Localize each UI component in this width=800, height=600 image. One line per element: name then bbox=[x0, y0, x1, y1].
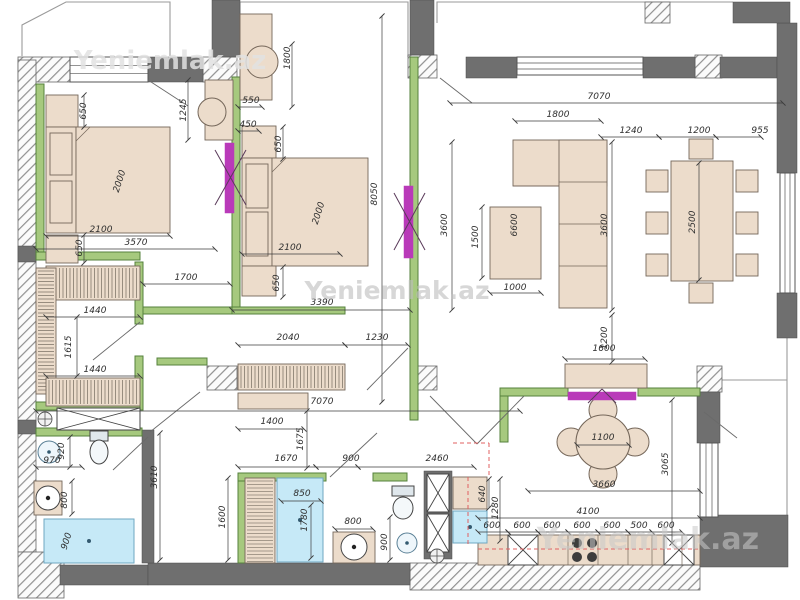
dimension-label: 955 bbox=[751, 126, 768, 136]
furniture bbox=[736, 170, 758, 192]
wall-segment bbox=[410, 0, 434, 55]
dimension-label: 1800 bbox=[547, 110, 570, 120]
dimension-label: 900 bbox=[342, 454, 359, 464]
dimension-label: 3600 bbox=[440, 213, 450, 236]
dimension-label: 3660 bbox=[593, 480, 616, 490]
dimension-label: 640 bbox=[478, 485, 488, 502]
dimension-label: 7070 bbox=[588, 92, 611, 102]
dimension-label: 8050 bbox=[370, 182, 380, 205]
watermark-text: Yeniemlak.az bbox=[536, 522, 759, 557]
dimension-label: 800 bbox=[60, 491, 70, 508]
dimension-label: 550 bbox=[242, 96, 259, 106]
furniture bbox=[50, 133, 72, 175]
wall-segment bbox=[697, 392, 720, 443]
furniture bbox=[671, 161, 733, 281]
furniture bbox=[689, 139, 713, 159]
partition-wall bbox=[232, 307, 345, 314]
wall-segment bbox=[60, 565, 148, 585]
fixture-drain bbox=[468, 525, 472, 529]
toilet-bowl bbox=[393, 497, 413, 519]
dimension-label: 1700 bbox=[175, 273, 198, 283]
hatched-wall bbox=[697, 366, 722, 392]
dimension-label: 2100 bbox=[279, 243, 302, 253]
dimension-label: 1500 bbox=[471, 225, 481, 248]
dimension-label: 7070 bbox=[311, 397, 334, 407]
window bbox=[700, 443, 718, 517]
wall-segment bbox=[148, 563, 410, 585]
furniture bbox=[646, 212, 668, 234]
dimension-label: 650 bbox=[79, 102, 89, 119]
dimension-label: 1675 bbox=[296, 427, 306, 450]
sliding-door bbox=[568, 392, 636, 400]
dimension-label: 1280 bbox=[491, 496, 501, 519]
furniture bbox=[565, 364, 647, 388]
partition-wall bbox=[638, 388, 700, 396]
door-swing bbox=[440, 78, 472, 103]
furniture bbox=[238, 393, 308, 409]
shelving-cabinet bbox=[238, 364, 345, 390]
dimension-label: 1670 bbox=[275, 454, 298, 464]
hatched-wall bbox=[410, 563, 700, 590]
dimension-label: 1800 bbox=[283, 46, 293, 69]
dimension-label: 650 bbox=[75, 239, 85, 256]
door-swing bbox=[430, 396, 477, 444]
wall-segment bbox=[18, 246, 36, 262]
hatched-wall bbox=[207, 366, 237, 390]
dimension-label: 1440 bbox=[84, 365, 107, 375]
dimension-label: 600 bbox=[513, 521, 530, 531]
wall-segment bbox=[466, 57, 517, 78]
dimension-label: 3065 bbox=[661, 452, 671, 475]
dimension-label: 1780 bbox=[300, 508, 310, 531]
furniture bbox=[246, 164, 268, 208]
partition-wall bbox=[143, 307, 240, 314]
watermark-text: Yeniemlak.az bbox=[303, 276, 489, 305]
furniture bbox=[246, 212, 268, 256]
dimension-label: 1615 bbox=[64, 335, 74, 358]
hatched-wall bbox=[18, 60, 36, 552]
wall-segment bbox=[777, 23, 797, 173]
hatched-wall bbox=[695, 55, 722, 78]
dimension-label: 6600 bbox=[510, 213, 520, 236]
furniture bbox=[736, 254, 758, 276]
door-swing bbox=[93, 322, 140, 360]
building-outline bbox=[437, 2, 733, 23]
shelving-cabinet bbox=[36, 268, 56, 394]
floor-plan-page: 6502000210065035701245170014401615144055… bbox=[0, 0, 800, 600]
dimension-label: 1600 bbox=[593, 344, 616, 354]
partition-wall bbox=[373, 473, 407, 481]
dimension-label: 4100 bbox=[577, 507, 600, 517]
window bbox=[517, 57, 643, 75]
furniture bbox=[646, 170, 668, 192]
dimension-label: 3610 bbox=[150, 465, 160, 488]
wall-segment bbox=[777, 293, 797, 338]
toilet-tank bbox=[392, 486, 414, 496]
dimension-label: 2100 bbox=[90, 225, 113, 235]
fixture-drain bbox=[87, 539, 91, 543]
hatched-wall bbox=[645, 2, 670, 23]
plan-layers: 6502000210065035701245170014401615144055… bbox=[18, 0, 797, 598]
furniture bbox=[50, 181, 72, 223]
dimension-label: 800 bbox=[344, 517, 361, 527]
dimension-label: 3570 bbox=[125, 238, 148, 248]
dimension-label: 2040 bbox=[277, 333, 300, 343]
wall-segment bbox=[733, 2, 790, 23]
door-swing bbox=[367, 348, 408, 390]
dimension-label: 450 bbox=[239, 120, 256, 130]
dimension-label: 1200 bbox=[688, 126, 711, 136]
furniture bbox=[689, 283, 713, 303]
dimension-label: 650 bbox=[274, 135, 284, 152]
partition-wall bbox=[157, 358, 207, 365]
dimension-label: 2460 bbox=[426, 454, 449, 464]
toilet-bowl bbox=[90, 440, 108, 464]
washer-dot bbox=[46, 496, 50, 500]
sliding-door bbox=[225, 143, 234, 213]
watermark-text: Yeniemlak.az bbox=[73, 46, 267, 76]
dimension-label: 1400 bbox=[261, 417, 284, 427]
wall-segment bbox=[643, 57, 695, 78]
partition-wall bbox=[36, 84, 44, 252]
furniture bbox=[46, 95, 78, 127]
floor-plan-svg: 6502000210065035701245170014401615144055… bbox=[0, 0, 800, 600]
furniture bbox=[242, 266, 276, 296]
door-swing bbox=[150, 392, 200, 432]
dimension-label: 3600 bbox=[600, 213, 610, 236]
dimension-label: 600 bbox=[483, 521, 500, 531]
dimension-label: 900 bbox=[380, 533, 390, 550]
dimension-label: 850 bbox=[293, 489, 310, 499]
furniture bbox=[736, 212, 758, 234]
dimension-label: 1600 bbox=[218, 505, 228, 528]
shelving-cabinet bbox=[245, 478, 275, 563]
sink-drain bbox=[47, 450, 51, 454]
dimension-label: 1230 bbox=[366, 333, 389, 343]
dimension-label: 2500 bbox=[688, 210, 698, 233]
dimension-label: 1440 bbox=[84, 306, 107, 316]
furniture bbox=[646, 254, 668, 276]
sliding-door bbox=[404, 186, 413, 258]
wall-segment bbox=[142, 430, 154, 563]
dimension-label: 1000 bbox=[504, 283, 527, 293]
wall-segment bbox=[18, 420, 36, 434]
dimension-label: 1245 bbox=[179, 98, 189, 121]
dimension-label: 1240 bbox=[620, 126, 643, 136]
partition-wall bbox=[500, 388, 568, 396]
chair-icon bbox=[198, 98, 226, 126]
wall-segment bbox=[720, 57, 777, 78]
dimension-label: 920 bbox=[57, 442, 67, 459]
sink-drain bbox=[405, 541, 409, 545]
dimension-label: 650 bbox=[272, 274, 282, 291]
dimension-label: 1100 bbox=[592, 433, 615, 443]
window bbox=[780, 173, 795, 293]
washer-dot bbox=[352, 545, 356, 549]
